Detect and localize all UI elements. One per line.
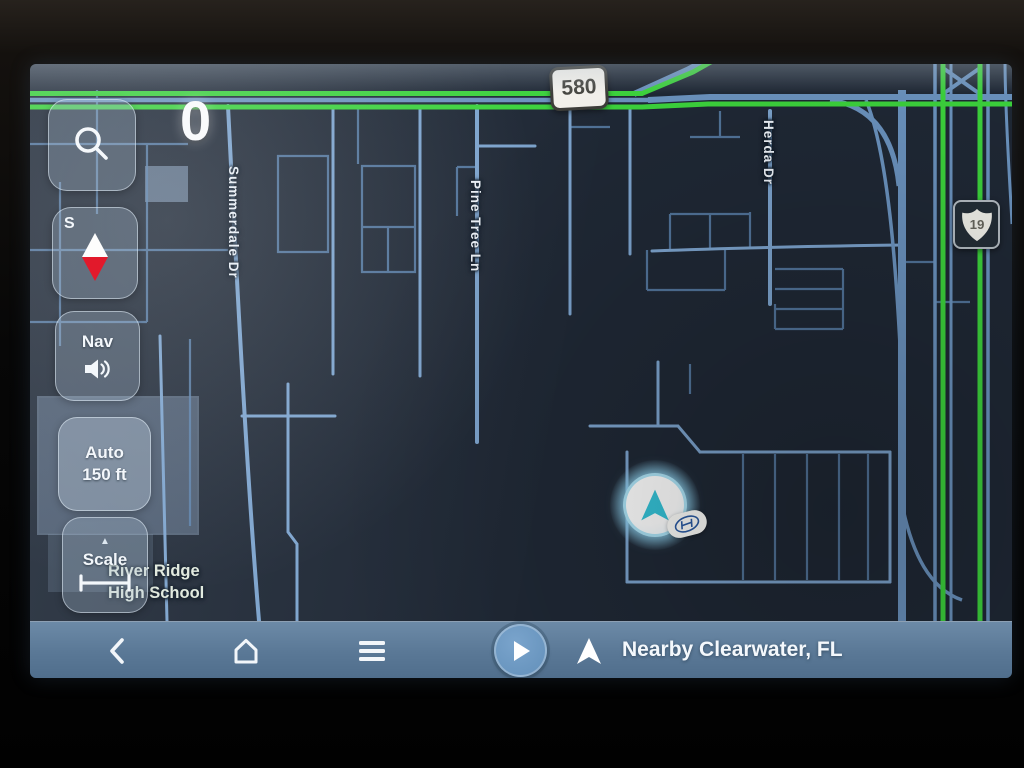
scale-button[interactable]: ▲ Scale <box>62 517 148 613</box>
navigation-arrow-icon <box>575 636 603 666</box>
scale-ruler-icon <box>77 573 133 593</box>
map-minor-streets <box>160 104 902 621</box>
street-label-herda: Herda Dr <box>761 120 776 185</box>
vehicle-position-marker <box>610 460 700 550</box>
map-route-highlight <box>30 64 1012 621</box>
nav-volume-button[interactable]: Nav <box>55 311 140 401</box>
infotainment-screen: 0 Summerdale Dr Pine Tree Ln Herda Dr Ri… <box>30 64 1012 678</box>
zoom-counter: 0 <box>180 88 211 153</box>
map-highways <box>30 64 1012 621</box>
back-button[interactable] <box>106 622 128 678</box>
auto-zoom-button[interactable]: Auto 150 ft <box>58 417 151 511</box>
auto-zoom-distance: 150 ft <box>82 465 126 485</box>
us-route-shield-icon: 19 <box>958 205 996 245</box>
map-canvas[interactable]: 0 Summerdale Dr Pine Tree Ln Herda Dr Ri… <box>30 64 1012 621</box>
street-label-pine-tree: Pine Tree Ln <box>468 180 483 272</box>
street-label-summerdale: Summerdale Dr <box>226 166 241 279</box>
auto-zoom-label: Auto <box>85 443 124 463</box>
nav-volume-label: Nav <box>82 332 113 352</box>
speaker-icon <box>83 357 113 381</box>
svg-text:19: 19 <box>969 216 984 231</box>
scale-label: Scale <box>83 550 127 570</box>
route-shield-580-label: 580 <box>561 75 597 101</box>
chevron-up-icon: ▲ <box>100 537 110 547</box>
compass-button[interactable]: S <box>52 207 138 299</box>
play-icon <box>509 638 533 664</box>
destination-text[interactable]: Nearby Clearwater, FL <box>622 638 843 662</box>
route-shield-us19: 19 <box>953 200 1000 249</box>
play-button[interactable] <box>494 624 547 677</box>
compass-needle-icon <box>82 233 108 281</box>
menu-icon <box>357 638 387 664</box>
menu-button[interactable] <box>357 622 387 678</box>
chevron-left-icon <box>106 636 128 666</box>
home-icon <box>230 636 262 666</box>
home-button[interactable] <box>230 622 262 678</box>
search-button[interactable] <box>48 99 136 191</box>
route-shield-580: 580 <box>549 65 609 112</box>
bottom-bar: Nearby Clearwater, FL <box>30 621 1012 678</box>
search-icon <box>70 123 114 167</box>
compass-cardinal-label: S <box>64 215 75 233</box>
map-roads-layer <box>30 64 1012 621</box>
